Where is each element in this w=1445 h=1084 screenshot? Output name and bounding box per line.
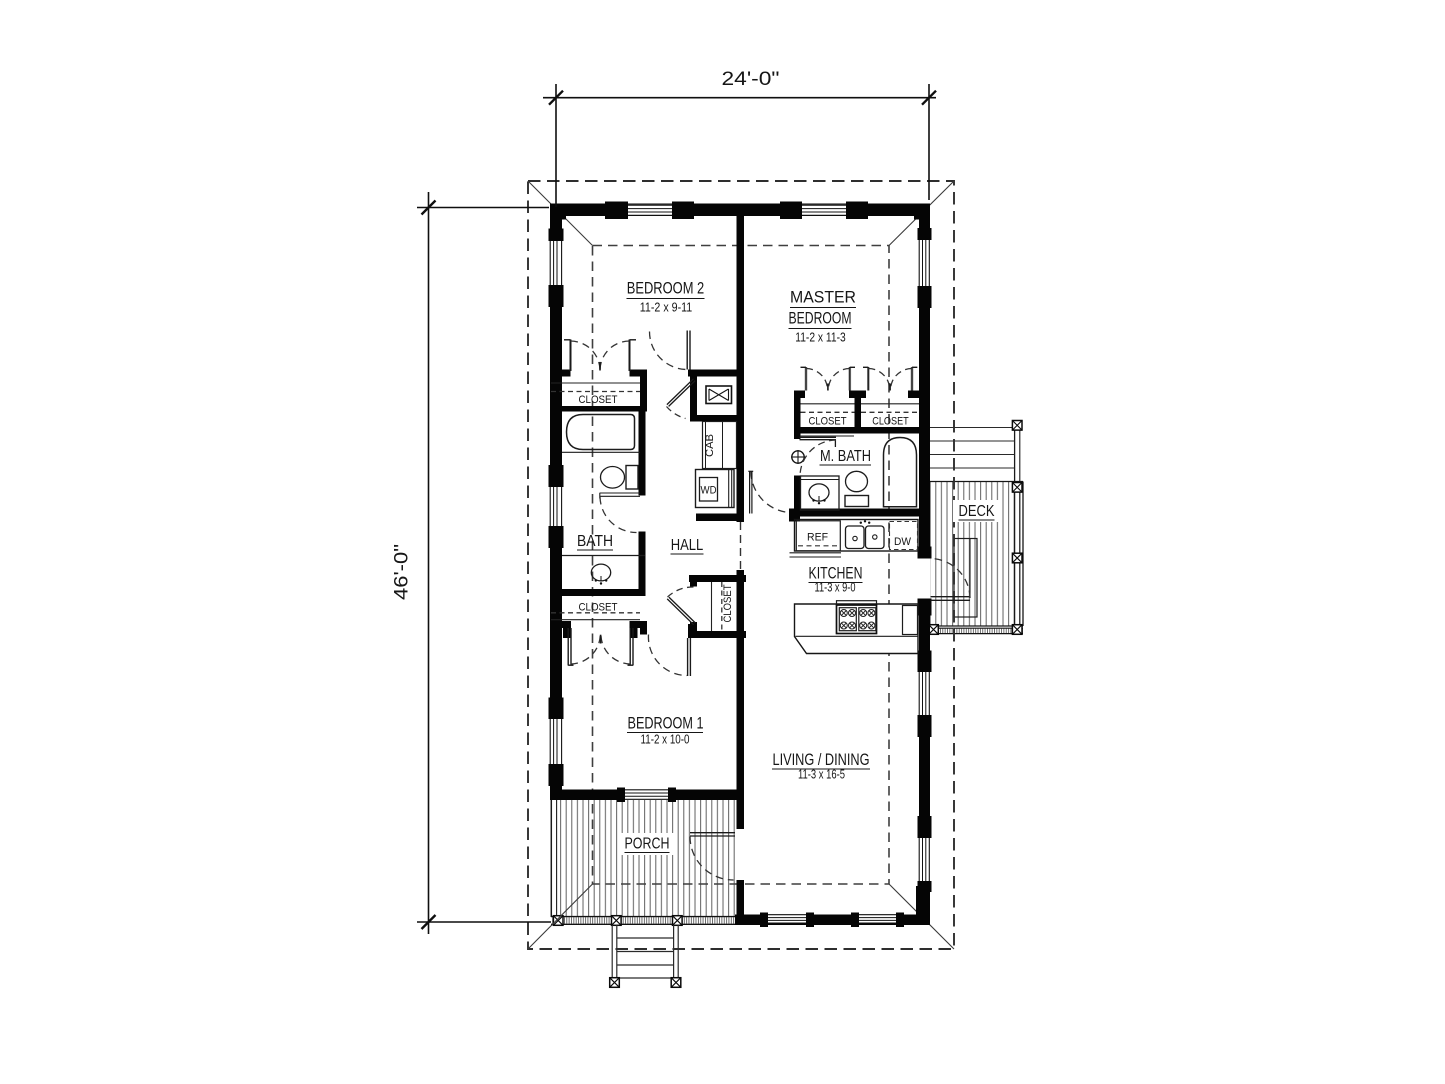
svg-text:CLOSET: CLOSET bbox=[579, 394, 618, 406]
svg-text:CLOSET: CLOSET bbox=[722, 584, 734, 622]
svg-text:CLOSET: CLOSET bbox=[579, 602, 618, 614]
svg-text:DW: DW bbox=[894, 536, 912, 548]
svg-text:PORCH: PORCH bbox=[625, 836, 670, 853]
svg-text:11-3 x 16-5: 11-3 x 16-5 bbox=[798, 767, 845, 782]
svg-text:24'-0": 24'-0" bbox=[722, 69, 780, 90]
svg-text:CAB: CAB bbox=[704, 434, 716, 457]
svg-text:11-3 x 9-0: 11-3 x 9-0 bbox=[815, 580, 856, 595]
svg-text:BEDROOM 1: BEDROOM 1 bbox=[628, 715, 704, 733]
svg-text:CLOSET: CLOSET bbox=[809, 416, 847, 428]
svg-text:BEDROOM: BEDROOM bbox=[789, 310, 852, 328]
svg-text:REF: REF bbox=[807, 532, 828, 544]
svg-text:WD: WD bbox=[701, 485, 717, 497]
svg-text:46'-0": 46'-0" bbox=[392, 544, 413, 600]
svg-text:BEDROOM 2: BEDROOM 2 bbox=[627, 280, 705, 298]
svg-text:11-2 x 11-3: 11-2 x 11-3 bbox=[795, 330, 846, 345]
svg-text:11-2 x 10-0: 11-2 x 10-0 bbox=[641, 732, 690, 747]
svg-text:CLOSET: CLOSET bbox=[872, 416, 909, 428]
svg-text:HALL: HALL bbox=[671, 537, 704, 554]
svg-text:BATH: BATH bbox=[577, 533, 613, 550]
svg-text:DECK: DECK bbox=[959, 503, 996, 520]
svg-text:11-2 x 9-11: 11-2 x 9-11 bbox=[640, 300, 693, 315]
svg-text:M. BATH: M. BATH bbox=[820, 448, 871, 465]
svg-text:MASTER: MASTER bbox=[790, 289, 856, 307]
